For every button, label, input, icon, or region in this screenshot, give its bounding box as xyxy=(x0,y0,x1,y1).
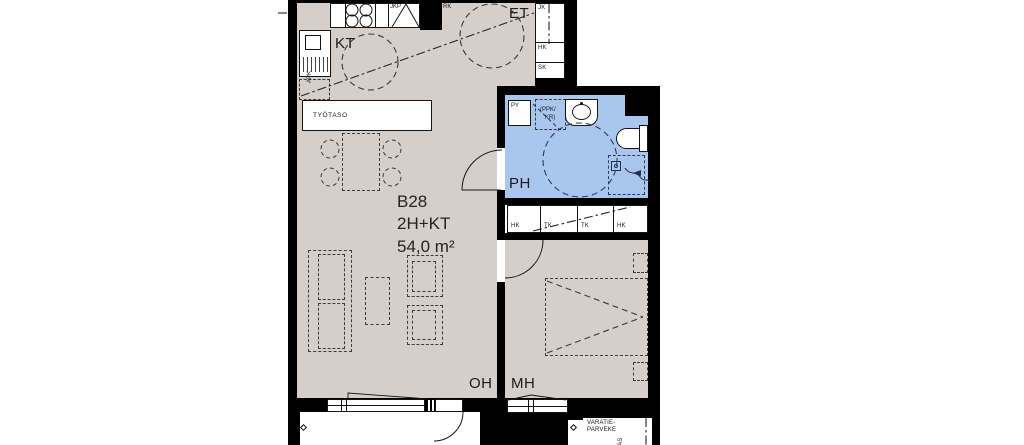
wall-bathroom-top xyxy=(497,86,660,95)
faucet-icon xyxy=(580,102,583,105)
toilet-tank xyxy=(639,125,648,152)
window-divider xyxy=(528,399,529,413)
wall-balcony-mid2 xyxy=(568,410,583,420)
wall-right xyxy=(648,95,660,410)
dishwasher-label: APK xyxy=(307,71,313,83)
dining-table xyxy=(342,133,380,191)
coffee-table xyxy=(365,277,390,325)
window-frame-line xyxy=(507,406,568,407)
nightstand xyxy=(633,253,648,273)
closet-divider xyxy=(540,205,541,233)
wall-bottom-left xyxy=(288,398,300,445)
nightstand xyxy=(633,362,648,381)
closet-label: HK xyxy=(617,223,626,229)
electrical-panel-label: RK xyxy=(443,4,451,10)
wall-divider-upper xyxy=(497,95,505,148)
drain-symbol xyxy=(300,424,307,431)
washer-dryer-label2: KR) xyxy=(545,115,555,121)
apartment-info: B28 2H+KT 54,0 m² xyxy=(397,191,455,258)
hall-closet-label: JK xyxy=(538,5,545,11)
drain-symbol xyxy=(570,424,577,431)
closet-divider xyxy=(535,42,565,43)
laundry-cabinet: PY xyxy=(508,100,531,126)
closet-label: TK xyxy=(581,223,589,229)
sink-bowl xyxy=(305,35,321,50)
wall-bathroom-notch xyxy=(625,95,648,116)
wall-bathroom-bottom xyxy=(505,198,648,205)
washer-dryer-label: (PPK/ xyxy=(540,107,556,113)
room-label-bedroom: MH xyxy=(511,376,535,391)
room-label-entry: ET xyxy=(509,6,529,21)
armchair-seat xyxy=(412,261,436,292)
closet-label: TK xyxy=(544,223,552,229)
hall-closet-label: SK xyxy=(538,65,546,71)
balcony-door xyxy=(435,399,463,412)
sofa-cushion xyxy=(318,303,345,349)
closet-label: HK xyxy=(511,223,520,229)
laundry-cabinet-label: PY xyxy=(511,103,519,109)
worktop: TYÖTASO xyxy=(302,100,432,131)
counter-divider xyxy=(375,3,376,28)
floor-plan: JKP RK APK TYÖTASO JK HK SK PY (PPK/ KR)… xyxy=(0,0,1024,445)
washer-dryer-space: (PPK/ KR) xyxy=(535,99,566,130)
wall-left xyxy=(288,0,297,412)
floor-drain-hole xyxy=(614,164,618,168)
window-divider xyxy=(533,399,534,413)
wall-kitchen-chunk xyxy=(420,0,442,30)
wall-balcony-mid xyxy=(480,410,568,445)
closet-divider xyxy=(535,62,565,63)
emergency-exit-label2: PARVEKE xyxy=(587,427,616,433)
wall-closet-bottom xyxy=(505,233,648,240)
room-label-kitchen: KT xyxy=(335,36,355,51)
room-label-bathroom: PH xyxy=(509,176,531,191)
dishwasher-space: APK xyxy=(299,79,330,100)
emergency-exit-label: VARATIE- xyxy=(587,420,615,426)
balcony-door-swing xyxy=(434,412,463,441)
hall-closet-label: HK xyxy=(538,45,547,51)
room-label-living: OH xyxy=(469,376,493,391)
door-hinge-block xyxy=(425,399,435,412)
apartment-area: 54,0 m² xyxy=(397,236,455,258)
wall-divider-mid xyxy=(497,190,505,240)
balcony-side-label: KAS xyxy=(618,437,624,445)
wall-balcony-edge xyxy=(652,418,660,445)
closet-divider xyxy=(577,205,578,233)
sofa-cushion xyxy=(318,254,345,300)
apartment-unit: B28 xyxy=(397,191,455,213)
washbasin-bowl xyxy=(572,104,591,120)
window-divider xyxy=(341,399,342,412)
fridge-freezer-label: JKP xyxy=(390,4,401,10)
bed xyxy=(545,278,648,356)
wall-divider-lower xyxy=(497,282,505,398)
armchair-seat xyxy=(412,310,436,340)
window-divider xyxy=(346,399,347,412)
wall-balcony-right xyxy=(583,410,660,418)
closet-divider xyxy=(613,205,614,233)
worktop-label: TYÖTASO xyxy=(313,113,348,120)
counter-divider xyxy=(388,3,389,28)
toilet-bowl xyxy=(616,128,640,149)
sink-drainboard xyxy=(303,57,328,72)
apartment-type: 2H+KT xyxy=(397,213,455,235)
floor-drain xyxy=(611,161,621,171)
counter-divider xyxy=(345,3,346,28)
